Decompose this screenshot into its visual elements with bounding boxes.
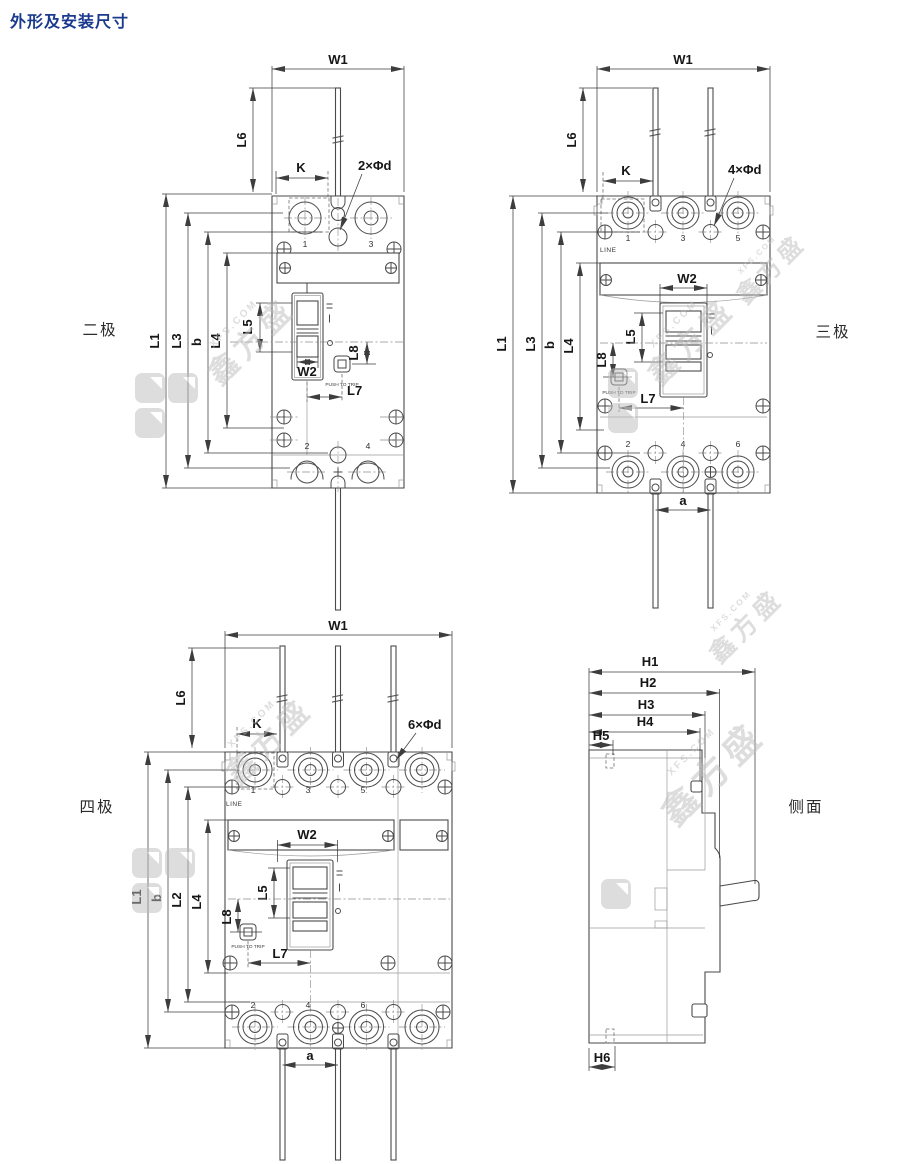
view-title-three-pole: 三极 (815, 323, 850, 341)
view-title-four-pole: 四极 (79, 798, 114, 816)
dim-label-l3: L3 (169, 333, 184, 348)
view-side: 侧面 H1 (589, 654, 824, 1071)
screw-icon (229, 831, 240, 842)
screw-icon (756, 446, 770, 460)
dim-label-l3: L3 (523, 336, 538, 351)
dim-label-h2: H2 (640, 675, 657, 690)
screw-icon (386, 263, 397, 274)
dim-label-l4: L4 (561, 338, 576, 354)
terminal-number: 1 (251, 785, 256, 795)
screw-icon (280, 263, 291, 274)
cover-panel (277, 253, 399, 283)
dim-label-l4: L4 (189, 894, 204, 910)
brand-logo-icon (135, 373, 165, 403)
screw-icon (756, 399, 770, 413)
brand-logo-icon (168, 373, 198, 403)
breaker-body: 1 3 (270, 196, 404, 492)
dim-label-h1: H1 (642, 654, 659, 669)
dim-label-w1: W1 (328, 618, 348, 633)
dim-label-w1: W1 (673, 52, 693, 67)
dim-label-k: K (621, 163, 631, 178)
screw-icon (437, 831, 448, 842)
dim-label-h5: H5 (593, 728, 610, 743)
dim-label-l2: L2 (169, 892, 184, 907)
terminal-number: 5 (736, 233, 741, 243)
terminal-number: 4 (306, 1000, 311, 1010)
dim-label-holes: 2×Φd (358, 158, 391, 173)
toggle-lever (720, 880, 759, 906)
brand-logo-icon (132, 883, 162, 913)
terminal-number: 1 (303, 239, 308, 249)
terminal-number: 3 (369, 239, 374, 249)
screw-icon (438, 956, 452, 970)
line-label: LINE (226, 801, 243, 808)
screw-icon (705, 467, 716, 478)
dim-label-l5: L5 (255, 885, 270, 900)
screw-icon (383, 831, 394, 842)
dim-label-a: a (679, 493, 687, 508)
terminal-number: 2 (626, 439, 631, 449)
dim-label-holes: 4×Φd (728, 162, 761, 177)
screw-icon (381, 956, 395, 970)
dim-label-l6: L6 (564, 132, 579, 147)
brand-logo-icon (608, 403, 638, 433)
brand-logo-icon (601, 879, 631, 909)
terminal-number: 4 (366, 441, 371, 451)
wire-bottom (336, 488, 341, 610)
wires-top (650, 88, 715, 196)
dim-label-l7: L7 (640, 391, 655, 406)
wire-top (333, 88, 343, 196)
dim-label-holes: 6×Φd (408, 717, 441, 732)
terminal-number: 4 (681, 439, 686, 449)
dim-label-w2: W2 (677, 271, 697, 286)
dim-label-l6: L6 (173, 690, 188, 705)
terminal-number: 6 (736, 439, 741, 449)
dim-label-h4: H4 (637, 714, 654, 729)
dim-label-l6: L6 (234, 132, 249, 147)
brand-logo-icon (165, 848, 195, 878)
terminal-number: 3 (681, 233, 686, 243)
dim-label-w1: W1 (328, 52, 348, 67)
brand-logo-icon (135, 408, 165, 438)
screw-icon (438, 780, 452, 794)
dim-label-b: b (189, 338, 204, 346)
dim-label-l1: L1 (147, 333, 162, 348)
dim-label-a: a (306, 1048, 314, 1063)
dim-label-k: K (296, 160, 306, 175)
view-title-side: 侧面 (788, 798, 823, 816)
drawing-page: 外形及安装尺寸 二极 (0, 0, 920, 1164)
line-label: LINE (600, 247, 617, 254)
clip-tab (692, 1004, 707, 1017)
dim-label-l5: L5 (623, 329, 638, 344)
screw-icon (436, 1005, 450, 1019)
dim-label-l8: L8 (594, 352, 609, 367)
dim-label-l7: L7 (347, 383, 362, 398)
terminal-number: 1 (626, 233, 631, 243)
brand-logo-icon (608, 368, 638, 398)
terminal-number: 6 (361, 1000, 366, 1010)
dim-label-h3: H3 (638, 697, 655, 712)
dim-label-l7: L7 (272, 946, 287, 961)
dim-label-w2: W2 (297, 364, 317, 379)
terminal-number: 5 (361, 785, 366, 795)
terminal-number: 2 (305, 441, 310, 451)
screw-icon (333, 1023, 344, 1034)
terminal-number: 3 (306, 785, 311, 795)
dim-label-b: b (542, 341, 557, 349)
dim-label-l8: L8 (346, 345, 361, 360)
view-title-two-pole: 二极 (82, 321, 117, 339)
brand-logo-icon (132, 848, 162, 878)
cover-panel-right (400, 820, 448, 850)
dim-label-h6: H6 (594, 1050, 611, 1065)
screw-icon (601, 275, 612, 286)
dim-label-w2: W2 (297, 827, 317, 842)
screw-icon (223, 956, 237, 970)
dim-label-l8: L8 (219, 909, 234, 924)
dim-label-l1: L1 (494, 336, 509, 351)
